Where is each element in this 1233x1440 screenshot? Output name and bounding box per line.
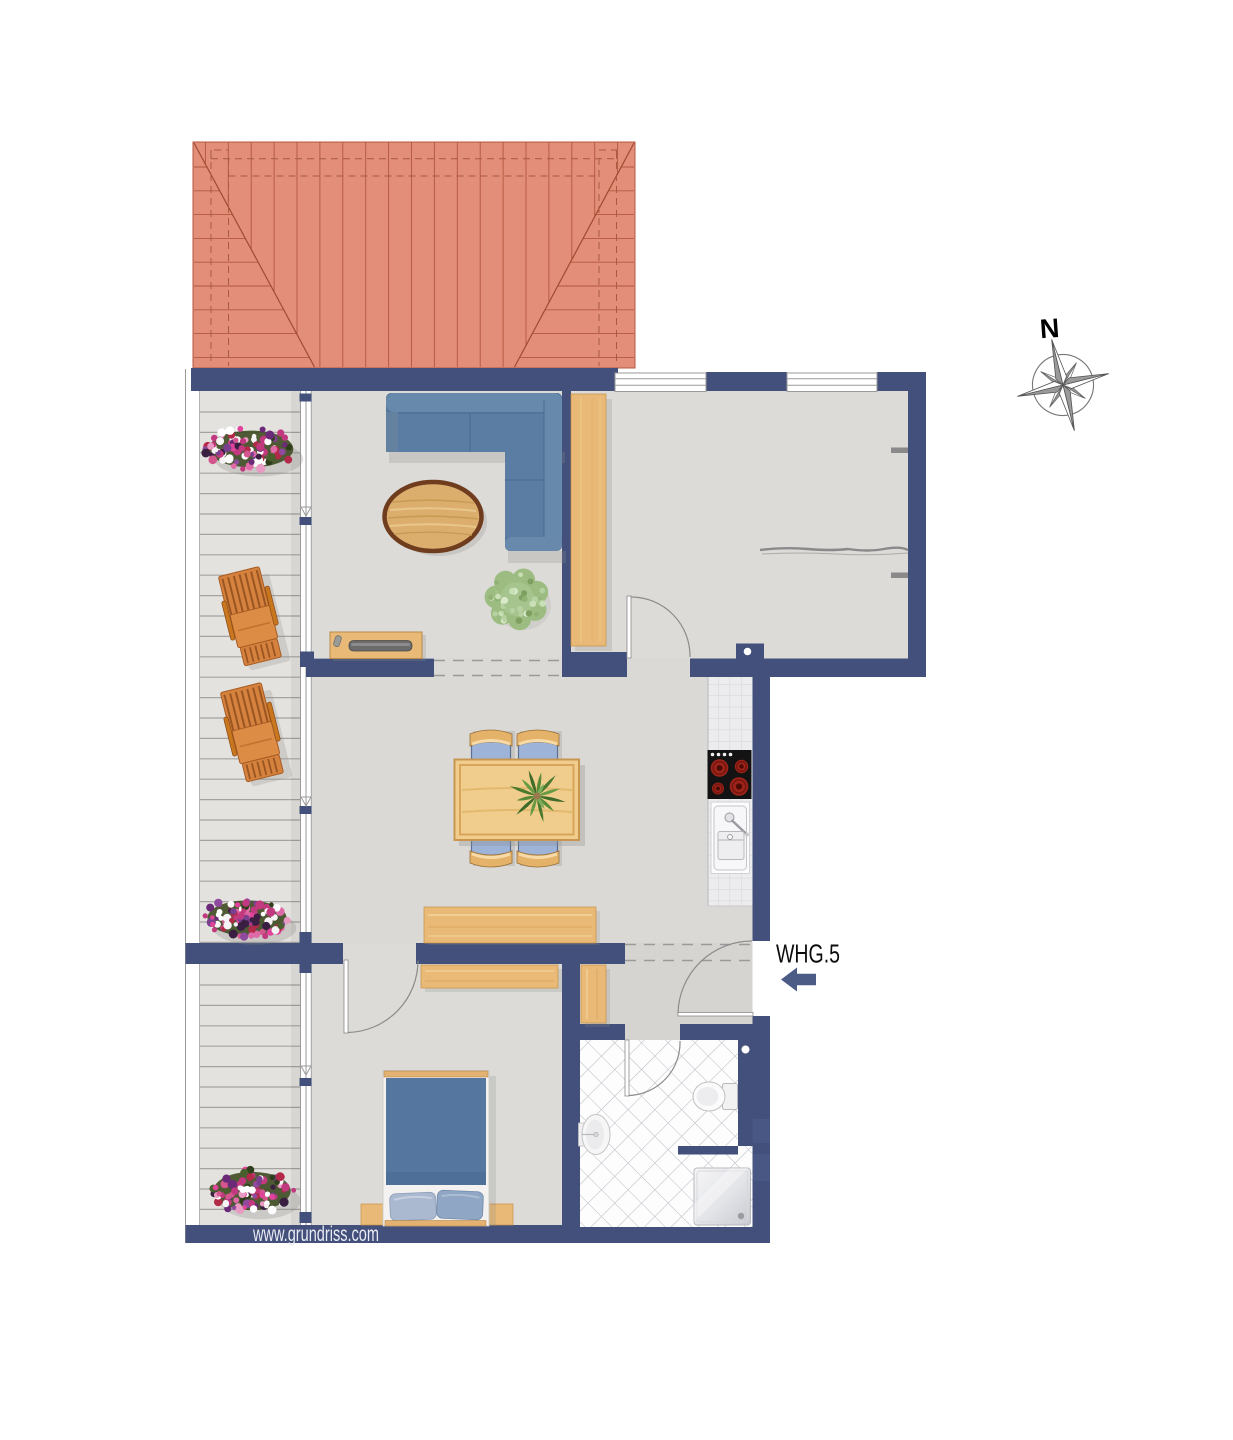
svg-text:WHG.5: WHG.5 — [776, 939, 840, 969]
svg-text:www.grundriss.com: www.grundriss.com — [252, 1223, 379, 1246]
svg-text:N: N — [1039, 313, 1061, 344]
